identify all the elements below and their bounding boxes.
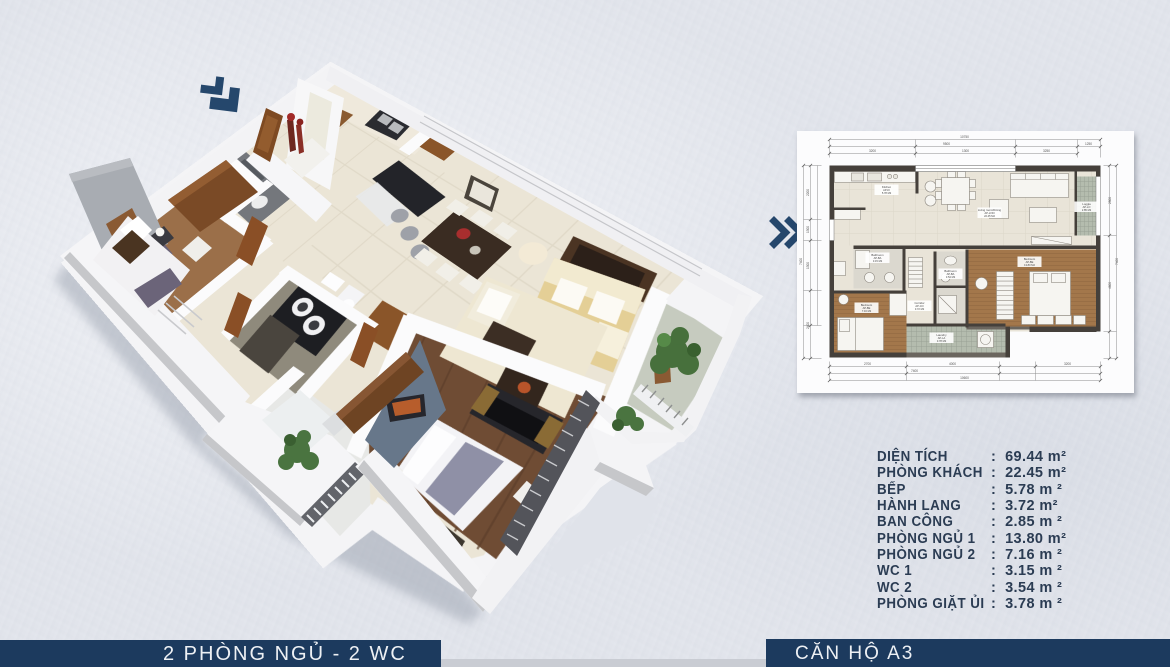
svg-text:1300: 1300 <box>806 262 810 269</box>
svg-text:3.78 M2: 3.78 M2 <box>937 339 947 343</box>
svg-text:3.72 M2: 3.72 M2 <box>915 307 925 311</box>
svg-text:7400: 7400 <box>911 369 918 373</box>
svg-text:2200: 2200 <box>806 189 810 196</box>
svg-text:3.15 M2: 3.15 M2 <box>873 259 883 263</box>
svg-text:1250: 1250 <box>1085 142 1092 146</box>
svg-text:2400: 2400 <box>806 322 810 329</box>
svg-text:13.80 M2: 13.80 M2 <box>1024 263 1035 267</box>
svg-text:1300: 1300 <box>806 226 810 233</box>
svg-text:2.85 M2: 2.85 M2 <box>1082 208 1092 212</box>
svg-text:9500: 9500 <box>943 142 950 146</box>
svg-text:10600: 10600 <box>960 376 969 380</box>
svg-text:10750: 10750 <box>960 135 969 139</box>
svg-text:22.45 M2: 22.45 M2 <box>984 214 995 218</box>
svg-text:2800: 2800 <box>1108 197 1112 204</box>
svg-text:3250: 3250 <box>1043 149 1050 153</box>
svg-text:4600: 4600 <box>1108 282 1112 289</box>
svg-text:1300: 1300 <box>962 149 969 153</box>
svg-text:7400: 7400 <box>1115 258 1119 265</box>
svg-text:5.78 M2: 5.78 M2 <box>882 191 892 195</box>
svg-text:2700: 2700 <box>864 362 871 366</box>
svg-text:3.54 M2: 3.54 M2 <box>946 275 956 279</box>
svg-text:7400: 7400 <box>799 258 803 265</box>
svg-text:3200: 3200 <box>1064 362 1071 366</box>
svg-text:7.16 M2: 7.16 M2 <box>862 309 872 313</box>
svg-text:3200: 3200 <box>869 149 876 153</box>
svg-text:4000: 4000 <box>949 362 956 366</box>
